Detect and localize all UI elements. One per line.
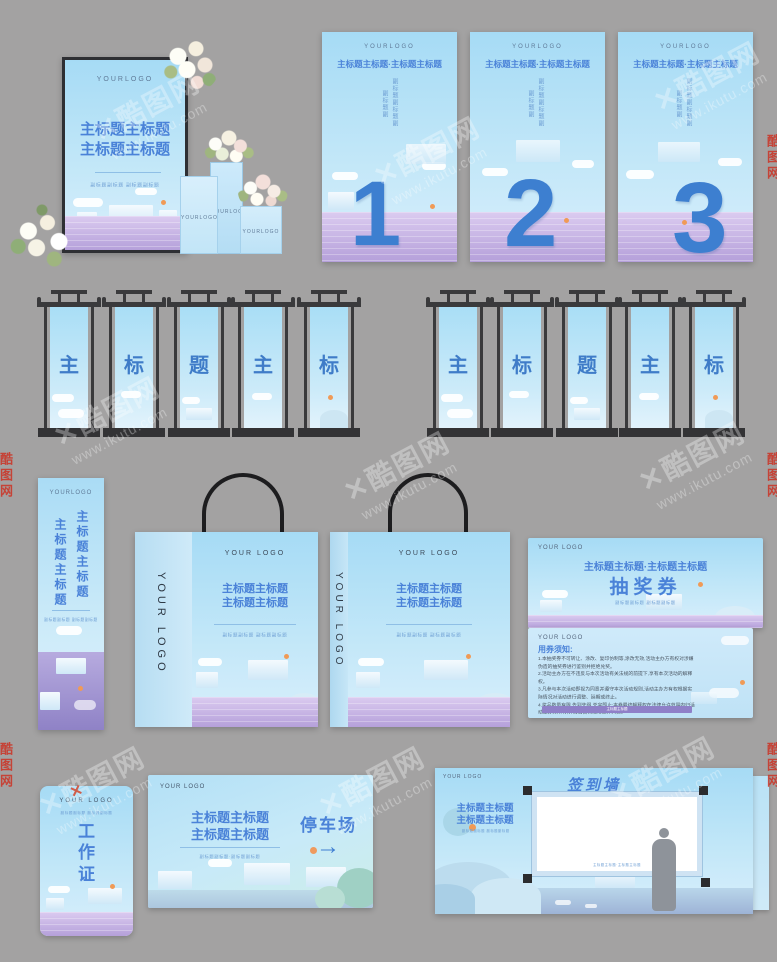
hanging-banner-left-2: 标 [107, 290, 161, 437]
ticket-front-title: 抽奖券 [528, 572, 763, 599]
bag-1-side-gusset: YOUR LOGO [135, 532, 192, 727]
watermark-red-stamp: 酷图网 [763, 134, 777, 182]
hanging-banner-right-5: 标 [687, 290, 741, 437]
bag-1-front: YOUR LOGO 主标题主标题 主标题主标题 副标题副标题 副标题副标题 [192, 532, 318, 727]
flower-arrangement-ground [8, 203, 76, 273]
watermark-red-stamp: 酷图网 [0, 452, 15, 500]
work-badge: YOUR LOGO 副标题副标题 副标题副标题 工 作 证 [40, 786, 133, 936]
ticket-term-2: 2.活动主办方在不违反与本次活动有关法规的前提下,享有本次活动的解释权。 [538, 671, 695, 686]
parking-sign: YOUR LOGO 主标题主标题 主标题主标题 副标题副标题·副标题副标题 停车… [148, 775, 373, 908]
ticket-back-notice-title: 用券须知: [538, 644, 573, 655]
flower-arrangement-right [238, 172, 288, 212]
watermark-red-stamp: 酷图网 [0, 742, 15, 790]
badge-title-vertical: 工 作 证 [40, 822, 133, 886]
poster-number-1: 1 YOURLOGO 主标题主标题·主标题主标题 副标题副标题副 副标题副 [322, 32, 457, 262]
parking-title-2: 主标题主标题 [166, 824, 294, 843]
bag-1-subtitle: 副标题副标题 副标题副标题 [208, 631, 303, 638]
watermark-red-stamp: 酷图网 [763, 452, 777, 500]
ticket-back-footer-text: 主标题主标题 [606, 707, 627, 712]
ticket-front-logo: YOUR LOGO [538, 545, 583, 551]
poster-1-vertical-text-1: 副标题副标题副 [390, 78, 399, 127]
poster-1-vertical-text-2: 副标题副 [380, 90, 389, 118]
poster-2-headline: 主标题主标题·主标题主标题 [470, 58, 605, 70]
poster-number-3: 3 YOURLOGO 主标题主标题·主标题主标题 副标题副标题副 副标题副 [618, 32, 753, 262]
bag-1-title-2: 主标题主标题 [192, 594, 318, 610]
badge-char-3: 证 [40, 865, 133, 886]
backdrop-title-2: 主标题主标题 [65, 138, 185, 159]
bag-2-front: YOUR LOGO 主标题主标题 主标题主标题 副标题副标题 副标题副标题 [348, 532, 510, 727]
x-banner-subtitle: 副标题副标题 副标题副标题 [42, 617, 100, 623]
bag-2-side-logo: YOUR LOGO [333, 572, 344, 669]
signwall-title-2: 主标题主标题 [447, 812, 523, 826]
x-banner-logo: YOURLOGO [38, 490, 104, 496]
parking-arrow-icon: → [316, 833, 340, 861]
parking-divider [180, 847, 280, 848]
backdrop-title-1: 主标题主标题 [65, 118, 185, 139]
parking-subtitle: 副标题副标题·副标题副标题 [185, 853, 275, 859]
poster-1-headline: 主标题主标题·主标题主标题 [322, 58, 457, 70]
poster-number-2-digit: 2 [504, 166, 557, 262]
poster-3-vertical-text-1: 副标题副标题副 [684, 78, 693, 127]
bag-1-divider [214, 624, 296, 625]
x-banner-col-2: 主标题主标题 [52, 518, 69, 608]
badge-subtitle: 副标题副标题 副标题副标题 [59, 810, 115, 815]
badge-char-2: 作 [40, 843, 133, 864]
bag-2-title-2: 主标题主标题 [348, 594, 510, 610]
poster-3-logo: YOURLOGO [618, 44, 753, 50]
hanging-banner-right-3: 题 [560, 290, 614, 437]
lottery-ticket-front: YOUR LOGO 主标题主标题·主标题主标题 抽奖券 副标题副标题 副标题副标… [528, 538, 763, 628]
hanging-banner-right-2: 标 [495, 290, 549, 437]
hanging-banner-left-1: 主 [42, 290, 96, 437]
poster-1-logo: YOURLOGO [322, 44, 457, 50]
watermark-logo-icon: ✕ [339, 469, 376, 508]
sign-in-wall: YOUR LOGO 签到墙 主标题主标题 主标题主标题 副标题副标题 副标题副标… [435, 768, 753, 914]
ticket-back-logo: YOUR LOGO [538, 635, 583, 641]
canvas-clamp-br [701, 878, 710, 887]
hanging-banner-right-4: 主 [623, 290, 677, 437]
hanging-banner-left-4: 主 [236, 290, 290, 437]
ticket-term-1: 1.本抽奖券不可转让、涂改、复印仿制等,涂改无效,活动主办方有权对涉嫌伪造的抽奖… [538, 656, 695, 671]
backdrop-subtitle: 副标题副标题 副标题副标题 [77, 181, 173, 188]
bag-2-side-gusset: YOUR LOGO [330, 532, 348, 727]
x-banner-col-1: 主标题主标题 [74, 510, 91, 600]
bag-1-logo: YOUR LOGO [192, 550, 318, 557]
ticket-front-headline: 主标题主标题·主标题主标题 [528, 558, 763, 573]
poster-3-headline: 主标题主标题·主标题主标题 [618, 58, 753, 70]
poster-number-2: 2 YOURLOGO 主标题主标题·主标题主标题 副标题副标题副 副标题副 [470, 32, 605, 262]
watermark-logo-icon: ✕ [634, 459, 671, 498]
pedestal-right: YOURLOGO [240, 206, 282, 254]
poster-number-3-digit: 3 [672, 168, 728, 262]
poster-3-vertical-text-2: 副标题副 [674, 90, 683, 118]
bag-1-side-logo: YOUR LOGO [155, 572, 167, 675]
poster-2-logo: YOURLOGO [470, 44, 605, 50]
bag-2-logo: YOUR LOGO [348, 550, 510, 557]
x-banner: YOURLOGO 主标题主标题 主标题主标题 副标题副标题 副标题副标题 [38, 478, 104, 730]
vi-mockup-sheet: YOURLOGO 主标题主标题 主标题主标题 副标题副标题 副标题副标题 YOU… [0, 0, 777, 962]
hanging-banner-left-3: 题 [172, 290, 226, 437]
flower-arrangement-frame-top [160, 36, 220, 94]
bag-2-subtitle: 副标题副标题 副标题副标题 [368, 631, 490, 638]
shopping-bag-1: YOUR LOGO YOUR LOGO 主标题主标题 主标题主标题 副标题副标题… [135, 532, 318, 727]
hanging-banner-right-1: 主 [431, 290, 485, 437]
signwall-canvas-caption: 主标题主标题·主标题主标题 [573, 862, 661, 867]
flower-arrangement-top [204, 128, 256, 168]
lottery-ticket-back: YOUR LOGO 用券须知: 1.本抽奖券不可转让、涂改、复印仿制等,涂改无效… [528, 628, 753, 718]
shopping-bag-2: YOUR LOGO YOUR LOGO 主标题主标题 主标题主标题 副标题副标题… [330, 532, 510, 727]
ticket-back-footer-bar: 主标题主标题 [542, 706, 692, 713]
signwall-canvas: 主标题主标题·主标题主标题 [532, 792, 702, 876]
canvas-clamp-bl [523, 874, 532, 883]
ticket-front-subtitle: 副标题副标题 副标题副标题 [563, 599, 728, 605]
signwall-side-panel [752, 776, 769, 910]
bag-2-divider [386, 624, 472, 625]
backdrop-divider [95, 172, 161, 173]
poster-2-vertical-text-1: 副标题副标题副 [536, 78, 545, 127]
poster-2-vertical-text-2: 副标题副 [526, 90, 535, 118]
poster-number-1-digit: 1 [350, 168, 401, 260]
canvas-clamp-tr [699, 786, 708, 795]
ticket-term-3: 3.凡参与本次活动即视为同意并遵守本次活动规则,活动主办方有权根据实际情况对活动… [538, 687, 695, 702]
canvas-clamp-tl [523, 786, 532, 795]
parking-logo: YOUR LOGO [160, 784, 205, 790]
badge-char-1: 工 [40, 822, 133, 843]
pedestal-front: YOURLOGO [180, 176, 218, 254]
x-banner-divider [52, 610, 90, 611]
hanging-banner-left-5: 标 [302, 290, 356, 437]
badge-logo: YOUR LOGO [40, 798, 133, 804]
signwall-subtitle: 副标题副标题 副标题副标题 [462, 828, 508, 833]
